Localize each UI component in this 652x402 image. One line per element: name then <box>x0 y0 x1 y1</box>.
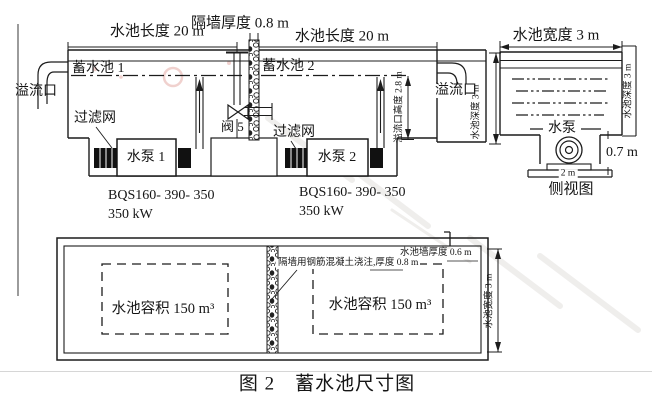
dim-overflow-height: 溢流口高度 2.8 m <box>395 71 405 143</box>
elevation-view <box>38 33 501 176</box>
overflow-left-label: 溢流口 <box>15 85 57 99</box>
volume-left-label: 水池容积 150 m³ <box>112 302 215 317</box>
dim-pool-depth-side: 水池深度 3 m <box>624 64 634 119</box>
pump2-label: 水泵 2 <box>318 151 357 165</box>
volume-right-label: 水池容积 150 m³ <box>329 298 432 313</box>
dim-pool-length-left: 水池长度 20 m <box>110 25 204 40</box>
pump1-label: 水泵 1 <box>127 151 166 165</box>
pump2-power: 350 kW <box>299 205 344 219</box>
pump1-coupling <box>178 148 191 168</box>
filter2-block <box>285 148 307 168</box>
tank1-label: 蓄水池 1 <box>72 62 125 76</box>
dim-pool-width-plan: 水池宽度 3 m <box>485 274 495 329</box>
valve-label: 阀 5 <box>221 120 244 133</box>
partition-wall <box>249 40 259 140</box>
dim-partition-thickness: 隔墙厚度 0.8 m <box>191 17 289 32</box>
dim-sump-width: 2 m <box>559 169 578 179</box>
side-view-caption: 侧视图 <box>548 183 593 198</box>
pump2-model: BQS160- 390- 350 <box>299 186 406 200</box>
tank2-label: 蓄水池 2 <box>262 60 315 74</box>
dim-pool-length-right: 水池长度 20 m <box>295 30 389 45</box>
pump1-model: BQS160- 390- 350 <box>108 189 215 203</box>
pump1-power: 350 kW <box>108 208 153 222</box>
figure-caption: 图 2 蓄水池尺寸图 <box>239 375 415 394</box>
dim-pool-depth-front: 水池深度 3 m <box>472 85 482 140</box>
dim-pump-height: 0.7 m <box>606 146 638 160</box>
figure-2-reservoir-dimension-diagram: 水池长度 20 m 隔墙厚度 0.8 m 水池长度 20 m 蓄水池 1 蓄水池… <box>0 0 652 402</box>
dim-pool-width-side: 水池宽度 3 m <box>513 29 600 44</box>
pump2-coupling <box>370 148 383 168</box>
filter-right-label: 过滤网 <box>273 126 315 140</box>
filter-left-label: 过滤网 <box>74 112 116 126</box>
side-pump-label: 水泵 <box>546 122 578 136</box>
note-partition-material: 隔墙用钢筋混凝土浇注,厚度 0.8 m <box>276 259 420 269</box>
chamber1-outline <box>102 264 228 334</box>
